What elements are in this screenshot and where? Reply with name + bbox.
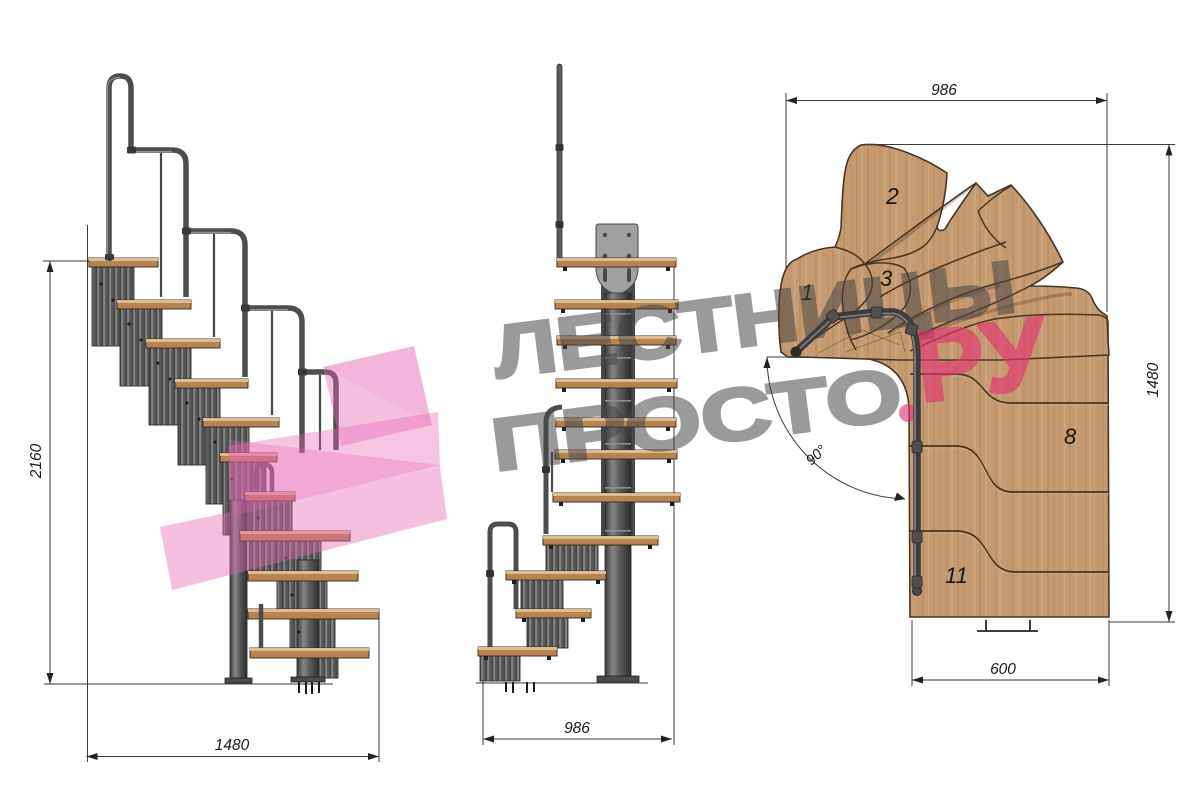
svg-text:986: 986 xyxy=(564,720,590,737)
svg-text:РУ: РУ xyxy=(910,296,1055,424)
svg-text:600: 600 xyxy=(990,661,1016,678)
svg-text:2160: 2160 xyxy=(28,443,45,479)
svg-text:986: 986 xyxy=(931,82,957,99)
svg-text:1480: 1480 xyxy=(215,737,250,754)
svg-text:8: 8 xyxy=(1064,424,1077,449)
svg-text:11: 11 xyxy=(945,563,968,588)
svg-text:1480: 1480 xyxy=(1145,362,1162,397)
svg-text:2: 2 xyxy=(885,183,899,209)
